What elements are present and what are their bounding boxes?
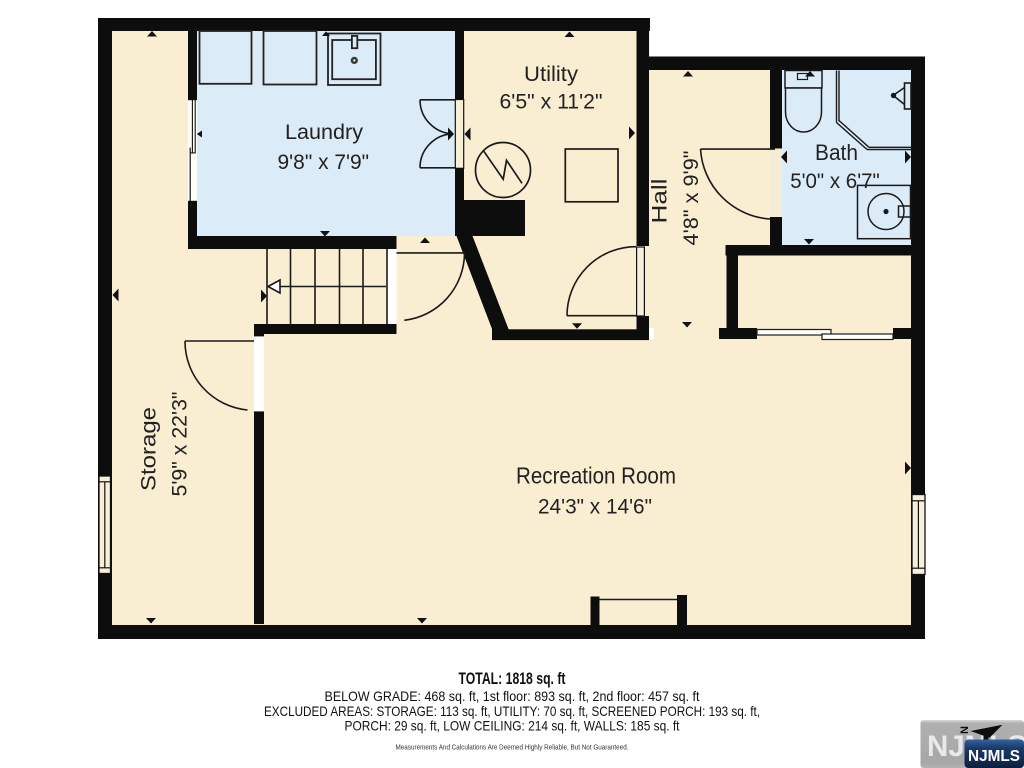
- svg-text:9'8" x 7'9": 9'8" x 7'9": [278, 150, 370, 174]
- svg-text:Bath: Bath: [815, 140, 858, 165]
- svg-text:NJMLS: NJMLS: [968, 748, 1020, 765]
- svg-text:6'5" x 11'2": 6'5" x 11'2": [500, 90, 603, 114]
- svg-text:Utility: Utility: [524, 63, 579, 86]
- svg-text:Measurements And Calculations: Measurements And Calculations Are Deemed…: [396, 745, 629, 752]
- svg-text:5'0" x 6'7": 5'0" x 6'7": [790, 169, 880, 193]
- svg-text:Hall: Hall: [649, 179, 672, 224]
- svg-text:5'9" x 22'3": 5'9" x 22'3": [168, 392, 192, 497]
- svg-text:N: N: [959, 726, 971, 734]
- svg-text:Recreation Room: Recreation Room: [516, 463, 676, 489]
- svg-text:TOTAL: 1818 sq. ft: TOTAL: 1818 sq. ft: [459, 670, 566, 688]
- svg-text:BELOW GRADE: 468 sq. ft, 1st f: BELOW GRADE: 468 sq. ft, 1st floor: 893 …: [325, 688, 700, 704]
- svg-text:PORCH: 29 sq. ft, LOW CEILING:: PORCH: 29 sq. ft, LOW CEILING: 214 sq. f…: [345, 718, 680, 734]
- svg-text:Storage: Storage: [138, 407, 161, 491]
- svg-text:24'3" x 14'6": 24'3" x 14'6": [538, 495, 652, 519]
- svg-text:4'8" x 9'9": 4'8" x 9'9": [679, 151, 703, 246]
- svg-text:Laundry: Laundry: [285, 121, 364, 144]
